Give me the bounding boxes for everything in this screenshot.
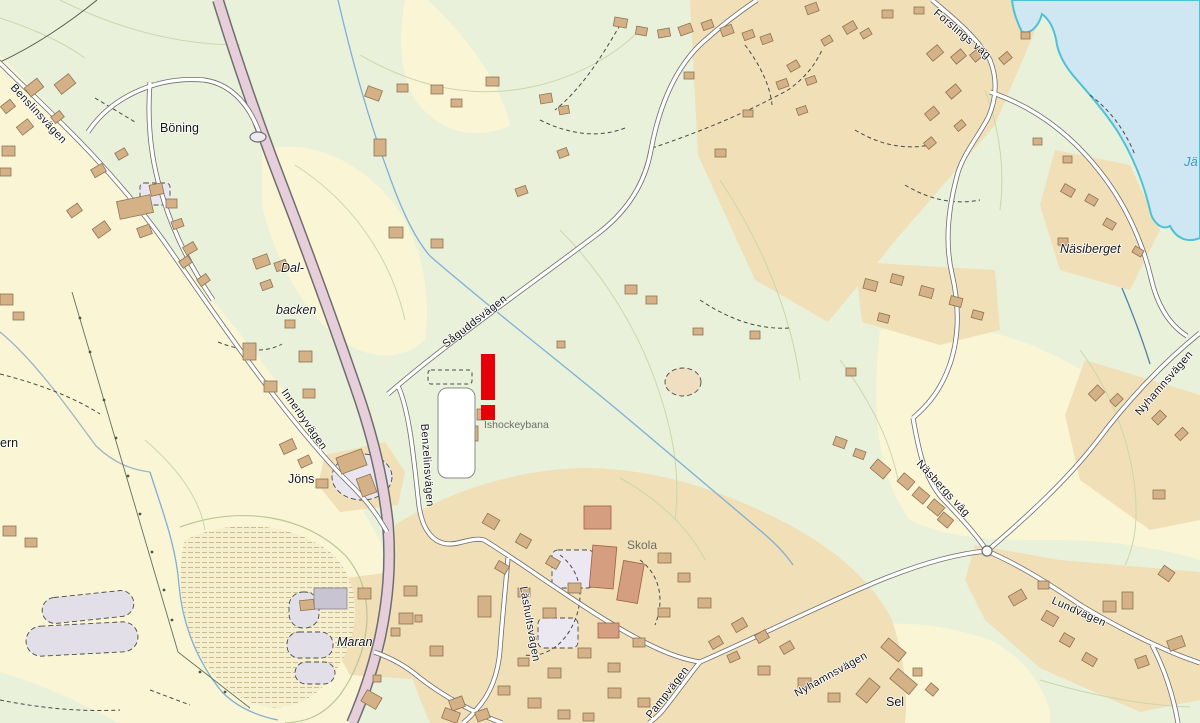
label-water-partial: Jä bbox=[1183, 154, 1198, 169]
building bbox=[25, 538, 37, 547]
building bbox=[638, 698, 650, 707]
ice-rink bbox=[438, 388, 475, 478]
building bbox=[646, 296, 657, 304]
building bbox=[548, 668, 561, 678]
building bbox=[264, 381, 277, 392]
building bbox=[2, 146, 15, 156]
building bbox=[608, 663, 620, 672]
building bbox=[635, 26, 647, 36]
building bbox=[598, 623, 619, 638]
building bbox=[558, 710, 570, 719]
building bbox=[374, 139, 386, 156]
label-ern-partial: ern bbox=[0, 436, 18, 450]
building bbox=[391, 628, 400, 636]
building bbox=[518, 658, 529, 666]
building bbox=[389, 227, 403, 238]
building bbox=[285, 320, 295, 328]
building bbox=[314, 588, 347, 609]
building bbox=[584, 506, 611, 529]
building bbox=[399, 613, 413, 624]
building bbox=[543, 608, 556, 618]
label-dal: Dal- bbox=[281, 261, 304, 275]
building bbox=[528, 698, 541, 708]
map-viewport[interactable]: Benslinsvägen Böning Dal- backen Innerby… bbox=[0, 0, 1200, 723]
building bbox=[0, 168, 11, 176]
building bbox=[243, 343, 256, 360]
building bbox=[1153, 490, 1165, 499]
building bbox=[743, 110, 753, 117]
building bbox=[828, 693, 840, 702]
building bbox=[684, 72, 694, 79]
building bbox=[557, 341, 565, 348]
building bbox=[451, 99, 462, 107]
building bbox=[0, 294, 13, 305]
building bbox=[358, 588, 371, 599]
building bbox=[698, 598, 711, 608]
building bbox=[1122, 592, 1133, 609]
building bbox=[1103, 601, 1116, 612]
building bbox=[431, 239, 443, 248]
building bbox=[558, 105, 569, 115]
building bbox=[397, 84, 408, 92]
building bbox=[583, 713, 594, 721]
building bbox=[693, 328, 703, 335]
building bbox=[415, 615, 422, 622]
building bbox=[373, 675, 381, 682]
building bbox=[625, 285, 637, 294]
building bbox=[539, 93, 552, 104]
alert-marker[interactable] bbox=[481, 354, 495, 420]
label-skola: Skola bbox=[627, 538, 657, 552]
label-nasiberget: Näsiberget bbox=[1060, 242, 1121, 256]
label-ishockeybana: Ishockeybana bbox=[484, 419, 549, 431]
label-backen: backen bbox=[276, 303, 316, 317]
building bbox=[299, 351, 312, 362]
label-boning: Böning bbox=[160, 121, 199, 135]
building bbox=[498, 686, 510, 695]
building bbox=[431, 85, 443, 94]
building bbox=[303, 389, 315, 398]
building bbox=[882, 10, 893, 18]
building bbox=[578, 648, 591, 658]
building bbox=[1021, 32, 1030, 39]
building bbox=[149, 183, 164, 196]
building bbox=[613, 17, 627, 28]
building bbox=[1063, 156, 1072, 163]
building bbox=[657, 28, 670, 38]
building bbox=[658, 608, 670, 617]
building bbox=[568, 583, 581, 593]
building bbox=[846, 368, 856, 376]
label-maran: Maran bbox=[337, 635, 372, 649]
building bbox=[589, 545, 617, 589]
building bbox=[913, 668, 922, 676]
building bbox=[316, 479, 328, 488]
map-image[interactable]: Benslinsvägen Böning Dal- backen Innerby… bbox=[0, 0, 1200, 723]
building bbox=[678, 573, 690, 582]
building bbox=[750, 331, 760, 339]
building bbox=[486, 77, 499, 86]
building bbox=[1033, 138, 1042, 145]
building bbox=[430, 646, 443, 656]
building bbox=[300, 599, 315, 610]
building bbox=[404, 586, 417, 596]
label-sel: Sel bbox=[886, 695, 904, 709]
building bbox=[914, 7, 924, 14]
building bbox=[166, 199, 177, 208]
building bbox=[3, 526, 16, 536]
building bbox=[608, 688, 621, 698]
label-jons: Jöns bbox=[288, 472, 314, 486]
building bbox=[758, 666, 770, 675]
building bbox=[715, 149, 726, 157]
building bbox=[13, 312, 24, 320]
building bbox=[658, 553, 671, 563]
building bbox=[633, 638, 645, 647]
building bbox=[1038, 581, 1049, 589]
building bbox=[478, 596, 491, 617]
